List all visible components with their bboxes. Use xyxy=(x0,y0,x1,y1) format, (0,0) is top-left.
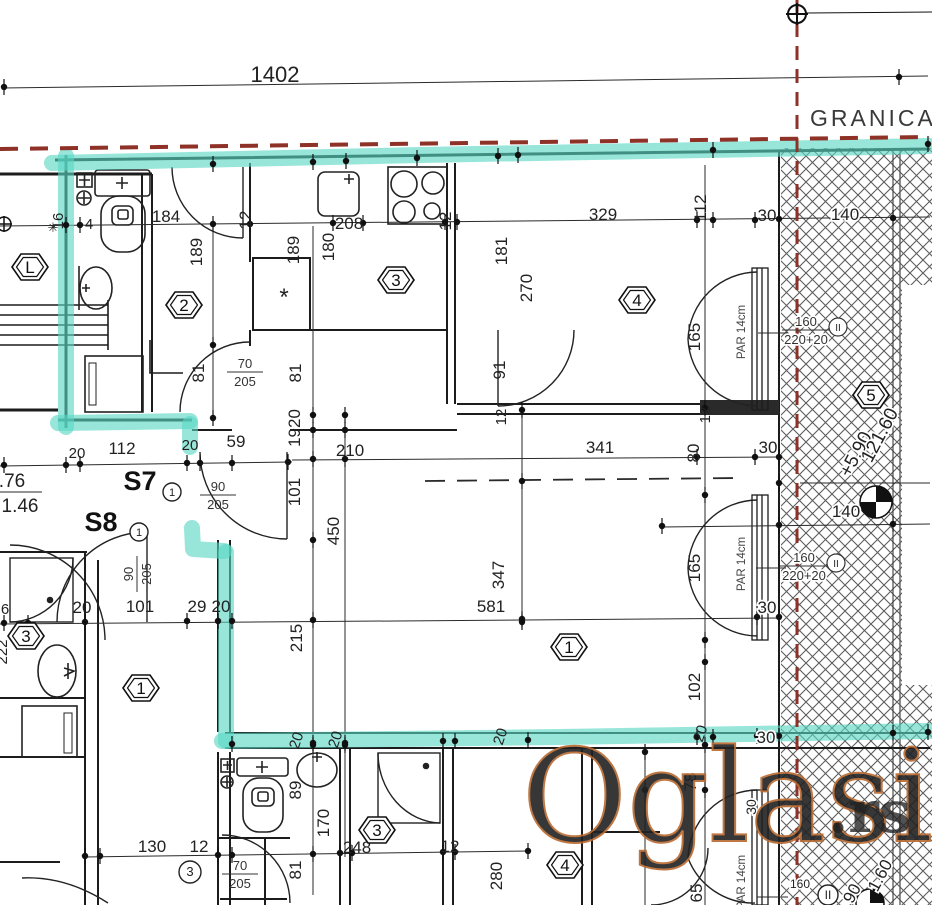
door-width-text: 70 xyxy=(233,858,247,873)
door-height-text: 205 xyxy=(207,497,229,512)
dimension-label: 59 xyxy=(227,432,246,451)
dimension-label: 160 xyxy=(790,877,810,891)
dimension-label: .76 xyxy=(0,471,25,492)
door-size-fraction: 90205 xyxy=(121,556,154,592)
dimension-tick xyxy=(310,451,316,467)
room-number-text: L xyxy=(25,258,34,277)
dimension-tick xyxy=(77,217,83,233)
dimension-label: 102 xyxy=(685,673,704,701)
room-number-hexagon: 1 xyxy=(123,675,159,701)
dimension-label: 12 xyxy=(441,837,460,856)
dimension-label: 215 xyxy=(287,624,306,652)
dimension-label: 20 xyxy=(182,437,199,454)
room-number-hexagon: 3 xyxy=(378,267,414,293)
room-number-hexagon: 5 xyxy=(853,382,889,408)
dimension-label: 329 xyxy=(589,205,617,224)
circled-mark-text: II xyxy=(825,888,832,902)
dimension-tick xyxy=(702,654,708,670)
dimension-label: 81 xyxy=(286,861,305,880)
survey-point-icon xyxy=(0,216,12,232)
dimension-tick xyxy=(184,455,190,471)
dimension-label: 80 xyxy=(684,444,703,463)
dimension-label: 347 xyxy=(489,561,508,589)
dimension-label: 91 xyxy=(490,361,509,380)
dimension-label: 30 xyxy=(758,598,777,617)
dimension-label: 101 xyxy=(126,597,154,616)
room-number-hexagon: 2 xyxy=(166,292,202,318)
survey-point-icon xyxy=(786,3,932,25)
dimension-label: 81 xyxy=(189,364,208,383)
dimension-label: 170 xyxy=(314,809,333,837)
room-number-text: 4 xyxy=(632,291,641,310)
dimension-label: 12 xyxy=(236,211,255,230)
window-mark-text: II xyxy=(833,559,839,570)
room-number-text: 3 xyxy=(391,271,400,290)
watermark-suffix: .rs xyxy=(828,778,911,846)
room-number-text: 1 xyxy=(564,638,573,657)
room-number-text: 2 xyxy=(179,296,188,315)
dimension-label: 280 xyxy=(487,862,506,890)
dimension-label: 112 xyxy=(108,439,135,458)
snowflake-icon: ✳ xyxy=(48,220,59,235)
parapet-label: PAR 14cm xyxy=(736,305,748,359)
dimension-tick xyxy=(519,614,525,630)
dimension-label: 208 xyxy=(335,214,363,233)
dimension-tick xyxy=(310,422,316,438)
dimension-label: 450 xyxy=(324,517,343,545)
room-number-hexagon: L xyxy=(12,254,48,280)
dimension-label: 1920 xyxy=(285,409,304,447)
room-number-hexagon: 3 xyxy=(8,623,44,649)
dimension-label: 130 xyxy=(138,837,166,856)
dimension-label: 89 xyxy=(286,781,305,800)
room-number-hexagon: 3 xyxy=(359,817,395,843)
dimension-tick xyxy=(310,532,316,548)
door-width-text: 90 xyxy=(211,479,225,494)
circled-mark: 1 xyxy=(130,523,148,541)
dimension-label: * xyxy=(279,284,288,311)
elevation-benchmark-icon xyxy=(860,486,892,518)
washing-machine xyxy=(22,706,77,757)
overall-dimension-label: 1402 xyxy=(251,62,300,87)
kitchen-sink xyxy=(318,172,359,216)
door-height-text: 205 xyxy=(139,563,154,585)
circled-mark: II xyxy=(818,885,838,905)
wall-fixture xyxy=(221,759,234,788)
circled-mark-text: 1 xyxy=(136,527,142,539)
dimension-tick xyxy=(710,212,716,228)
window-height-text: 220+20 xyxy=(784,332,828,347)
dimension-label: 81 xyxy=(286,364,305,383)
dimension-label: 20 xyxy=(73,598,92,617)
dimension-label: 20 xyxy=(69,445,86,462)
dimension-tick xyxy=(310,612,316,628)
dimension-label: 4 xyxy=(85,216,93,233)
dimension-label: 12 xyxy=(697,407,714,424)
dimension-tick xyxy=(342,407,348,423)
dimension-tick xyxy=(310,846,316,862)
dimension-label: 12 xyxy=(493,409,510,426)
circled-mark-text: 1 xyxy=(169,487,175,499)
dimension-label: 341 xyxy=(586,438,614,457)
dimension-label: 6 xyxy=(1,601,9,618)
washbasin xyxy=(38,645,76,697)
window-height-text: 220+20 xyxy=(782,568,826,583)
dimension-label: 20 xyxy=(212,597,231,616)
dimension-tick xyxy=(210,216,216,232)
dimension-tick xyxy=(342,422,348,438)
dimension-label: 29 xyxy=(188,597,207,616)
floor-plan-drawing: 1641841220812329112301401891891801812709… xyxy=(0,0,932,905)
window-mark-text: II xyxy=(835,323,841,334)
dimension-label: 165 xyxy=(685,323,704,351)
dimension-tick xyxy=(82,848,88,864)
dimension-tick xyxy=(519,473,525,489)
circled-mark: 1 xyxy=(163,483,181,501)
dimension-label: 140 xyxy=(831,205,859,224)
circled-mark: 3 xyxy=(179,861,201,883)
dimension-tick xyxy=(702,632,708,648)
dimension-tick xyxy=(229,455,235,471)
dimension-label: 140 xyxy=(832,502,860,521)
window-width-text: 160 xyxy=(793,550,815,565)
washing-machine xyxy=(85,356,143,412)
circled-mark-text: 3 xyxy=(186,864,193,879)
dimension-tick xyxy=(659,518,665,534)
washbasin xyxy=(79,266,112,310)
door-height-text: 205 xyxy=(234,374,256,389)
dimension-label: 180 xyxy=(319,233,338,261)
parapet-label: PAR 14cm xyxy=(736,537,748,591)
room-number-text: 1 xyxy=(136,679,145,698)
dimension-label: 222 xyxy=(0,639,11,664)
room-number-hexagon: 1 xyxy=(551,634,587,660)
dimension-label: 270 xyxy=(517,274,536,302)
boundary-label: GRANICA xyxy=(810,105,932,131)
dimension-tick xyxy=(310,407,316,423)
door-size-fraction: 70205 xyxy=(222,858,258,891)
dimension-label: 165 xyxy=(685,554,704,582)
dimension-tick xyxy=(285,454,291,470)
dimension-label: 581 xyxy=(477,597,505,616)
dimension-label: 1.46 xyxy=(2,496,39,517)
dimension-label: 181 xyxy=(492,237,511,265)
floor-plan-page: 1641841220812329112301401891891801812709… xyxy=(0,0,932,905)
dimension-label: 112 xyxy=(691,194,710,221)
dimension-label: 184 xyxy=(152,207,180,226)
dimension-label: 189 xyxy=(187,238,206,266)
dimension-tick xyxy=(210,410,216,426)
room-number-text: 3 xyxy=(21,627,30,646)
dimension-tick xyxy=(215,847,221,863)
dimension-tick xyxy=(702,487,708,503)
stair-flight-s7-label: S7 xyxy=(123,466,156,496)
room-number-text: 3 xyxy=(372,821,381,840)
dimension-label: 12 xyxy=(190,837,209,856)
wall-fixture xyxy=(77,173,92,205)
watermark: Oglasi .rs xyxy=(522,723,932,872)
door-width-text: 70 xyxy=(238,356,252,371)
room-number-hexagon: 4 xyxy=(619,287,655,313)
dimension-tick xyxy=(896,69,902,85)
door-height-text: 205 xyxy=(229,876,251,891)
stair-flight-s8-label: S8 xyxy=(84,507,117,537)
door-width-text: 90 xyxy=(121,567,136,581)
dimension-tick xyxy=(1,79,7,95)
room-number-text: 5 xyxy=(866,386,875,405)
dimension-label: 30 xyxy=(758,206,777,225)
dimension-label: 101 xyxy=(285,478,304,506)
dimension-label: 30 xyxy=(759,438,778,457)
door-size-fraction: 70205 xyxy=(227,356,263,389)
toilet-fixture xyxy=(237,758,288,832)
dimension-label: 210 xyxy=(336,441,364,460)
dimension-label: 12 xyxy=(436,212,455,231)
window-width-text: 160 xyxy=(795,314,817,329)
dimension-label: 65 xyxy=(687,884,706,903)
dimension-label: 189 xyxy=(284,236,303,264)
dimension-tick xyxy=(752,449,758,465)
